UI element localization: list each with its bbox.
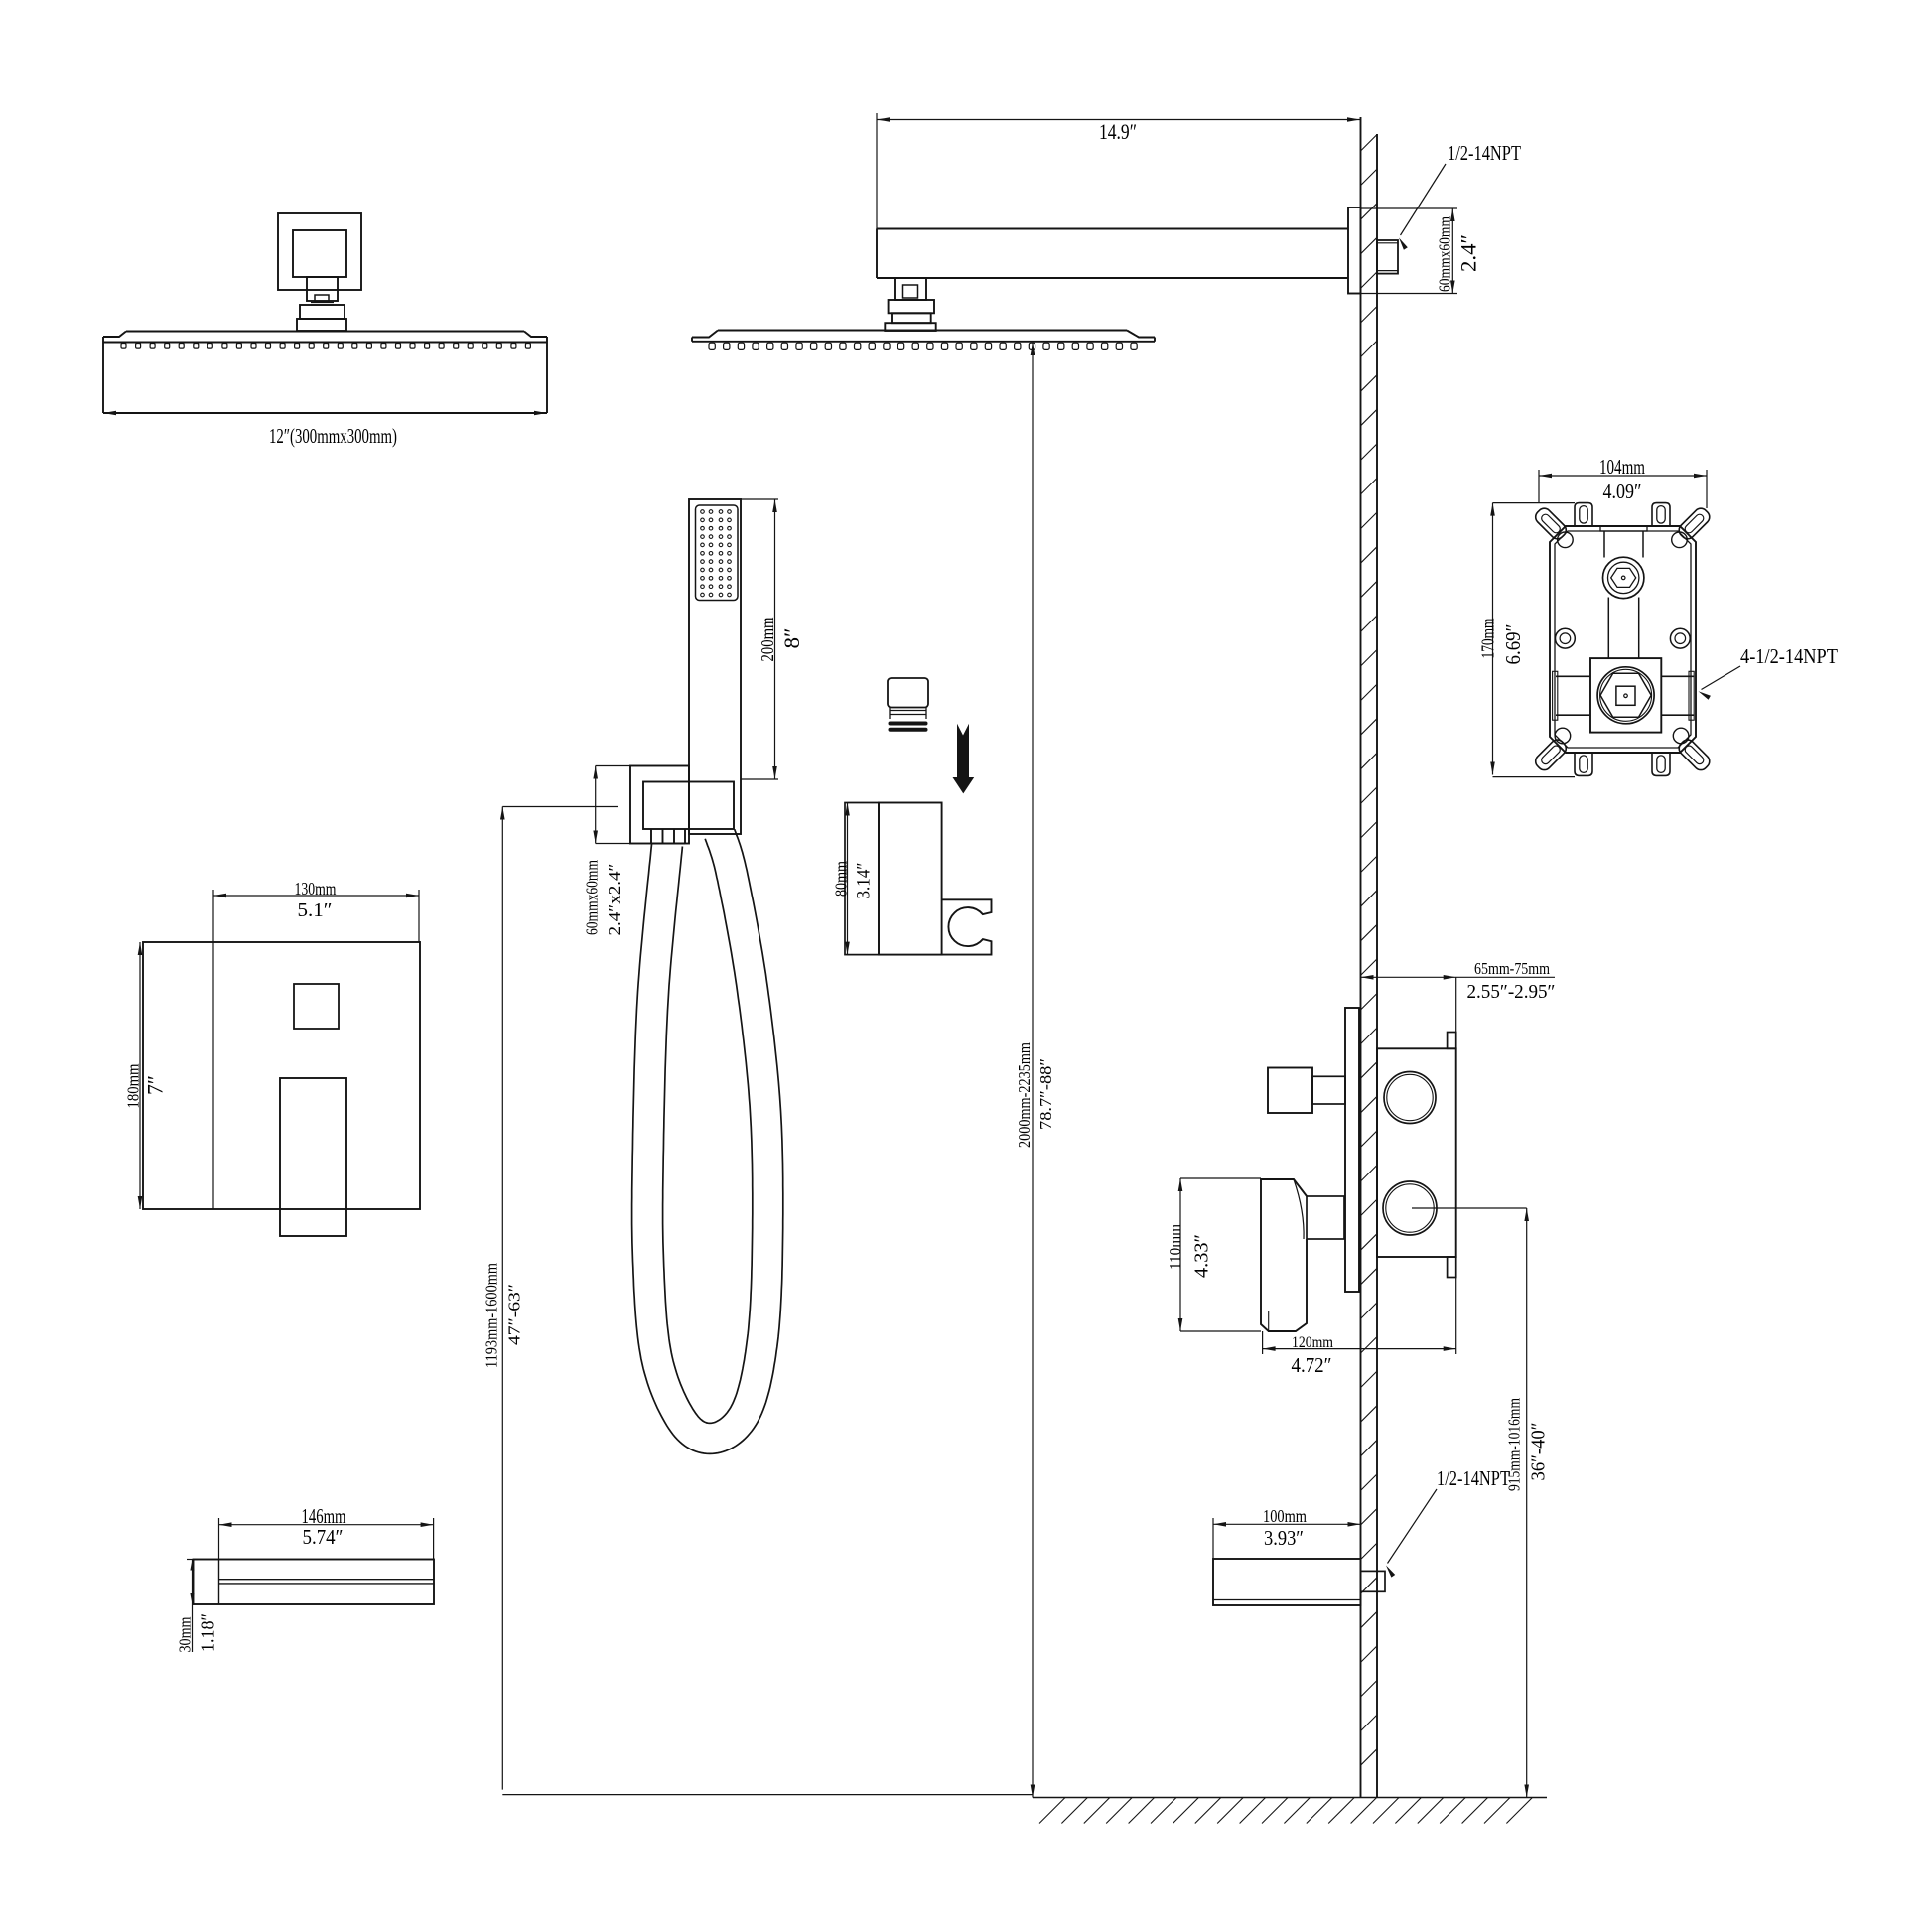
svg-text:80mm: 80mm	[832, 861, 851, 897]
svg-text:100mm: 100mm	[1263, 1506, 1307, 1526]
svg-text:110mm: 110mm	[1166, 1224, 1184, 1270]
svg-text:4.33″: 4.33″	[1191, 1234, 1213, 1278]
svg-text:14.9″: 14.9″	[1099, 119, 1137, 144]
svg-text:30mm: 30mm	[176, 1617, 195, 1653]
svg-text:60mmx60mm: 60mmx60mm	[583, 860, 602, 935]
svg-text:1/2-14NPT: 1/2-14NPT	[1448, 141, 1521, 165]
svg-text:200mm: 200mm	[758, 618, 777, 662]
svg-text:4.72″: 4.72″	[1292, 1353, 1332, 1377]
svg-text:120mm: 120mm	[1292, 1334, 1333, 1351]
svg-text:2.55″-2.95″: 2.55″-2.95″	[1467, 981, 1556, 1003]
svg-text:47″-63″: 47″-63″	[505, 1284, 524, 1345]
svg-text:78.7″-88″: 78.7″-88″	[1036, 1058, 1055, 1130]
svg-text:36″-40″: 36″-40″	[1528, 1423, 1550, 1481]
svg-text:4-1/2-14NPT: 4-1/2-14NPT	[1740, 644, 1838, 668]
svg-text:2000mm-2235mm: 2000mm-2235mm	[1015, 1042, 1034, 1148]
svg-text:3.93″: 3.93″	[1264, 1526, 1304, 1550]
svg-text:2.4″x2.4″: 2.4″x2.4″	[605, 864, 623, 936]
svg-text:1/2-14NPT: 1/2-14NPT	[1437, 1466, 1510, 1490]
svg-text:60mmx60mm: 60mmx60mm	[1436, 216, 1454, 292]
svg-text:104mm: 104mm	[1599, 455, 1645, 479]
svg-text:6.69″: 6.69″	[1501, 624, 1525, 665]
svg-text:5.1″: 5.1″	[298, 899, 333, 921]
svg-text:12″(300mmx300mm): 12″(300mmx300mm)	[269, 424, 397, 448]
svg-text:4.09″: 4.09″	[1603, 480, 1642, 503]
svg-text:8″: 8″	[779, 628, 804, 649]
svg-text:170mm: 170mm	[1477, 619, 1497, 659]
svg-text:1193mm-1600mm: 1193mm-1600mm	[483, 1263, 501, 1368]
svg-text:130mm: 130mm	[295, 879, 337, 898]
svg-text:65mm-75mm: 65mm-75mm	[1474, 959, 1550, 978]
svg-text:7″: 7″	[142, 1075, 167, 1095]
svg-text:2.4″: 2.4″	[1455, 234, 1480, 272]
svg-text:180mm: 180mm	[124, 1064, 143, 1109]
svg-text:3.14″: 3.14″	[853, 863, 874, 899]
svg-text:5.74″: 5.74″	[303, 1525, 344, 1549]
svg-text:1.18″: 1.18″	[198, 1613, 219, 1652]
